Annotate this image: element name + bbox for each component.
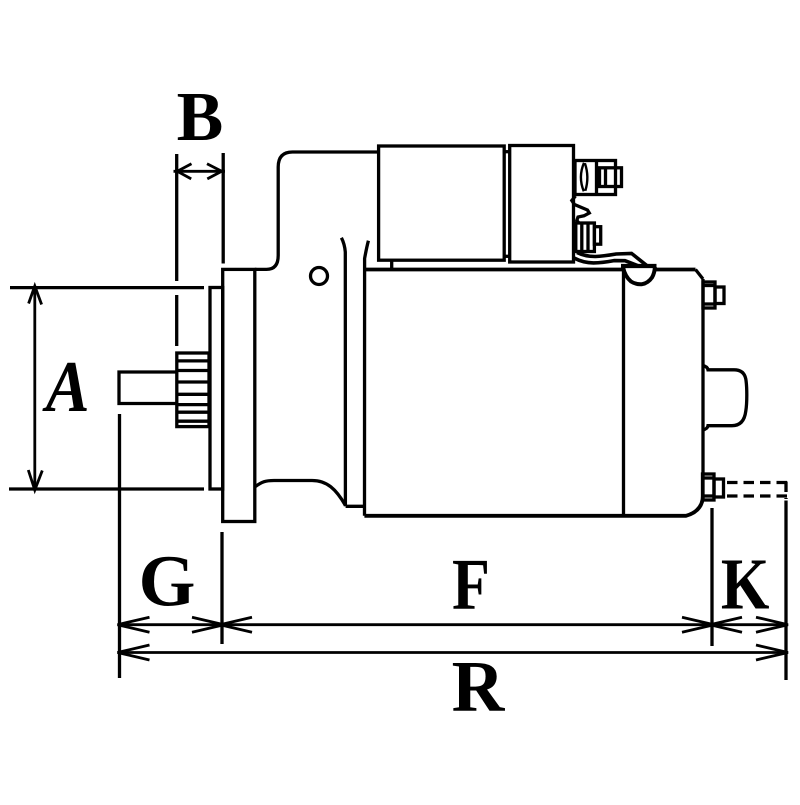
svg-text:K: K <box>721 543 770 625</box>
svg-text:A: A <box>42 347 90 428</box>
svg-text:G: G <box>139 541 196 622</box>
svg-text:R: R <box>452 646 506 727</box>
svg-text:B: B <box>177 79 224 156</box>
svg-text:F: F <box>452 544 490 625</box>
